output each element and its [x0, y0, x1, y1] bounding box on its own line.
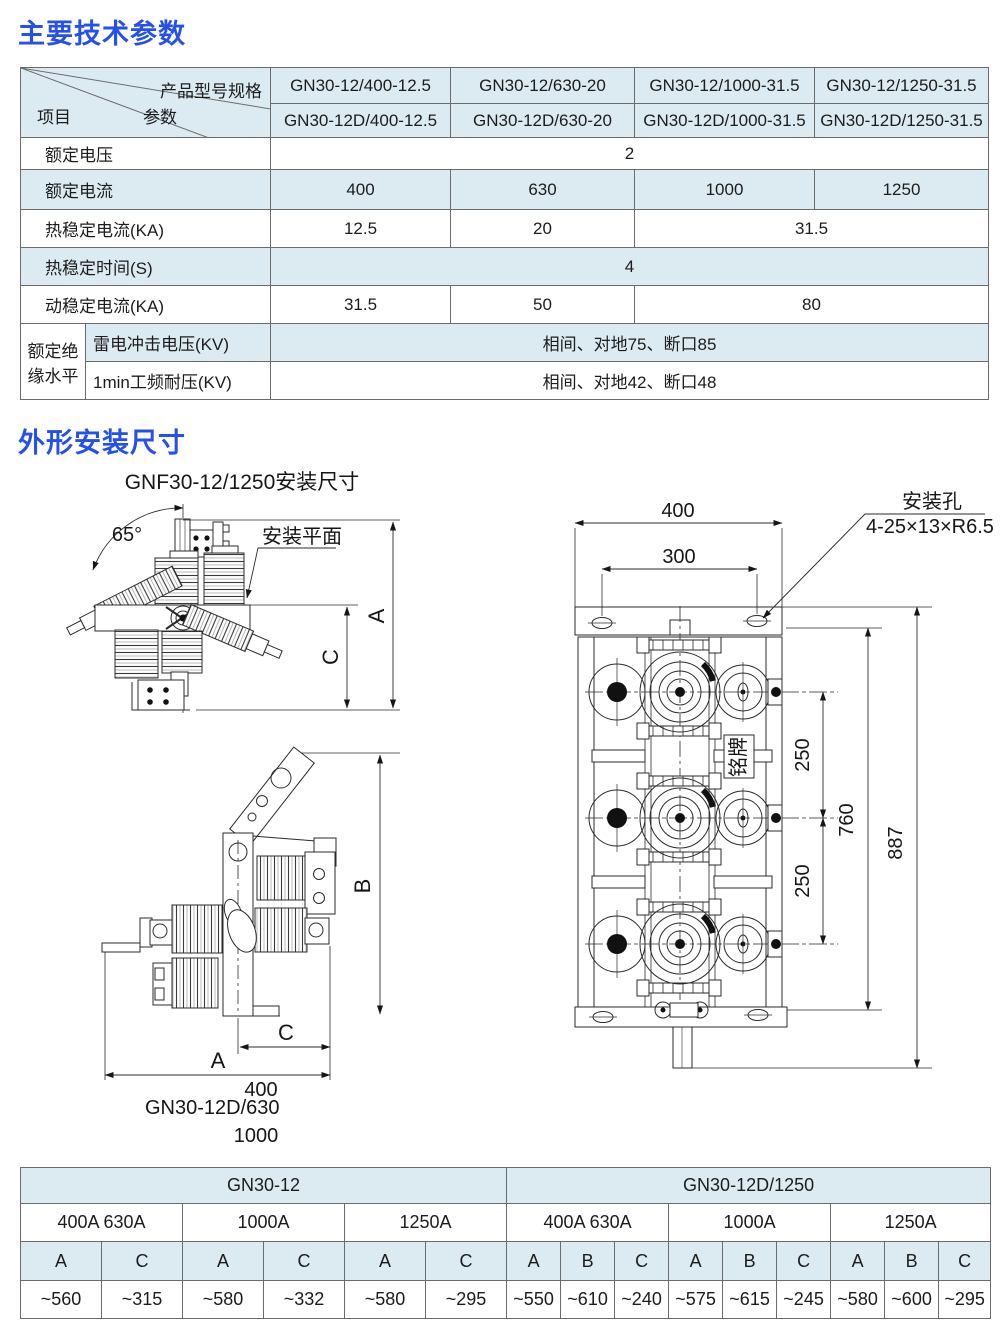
val-cell: ~615 [723, 1281, 777, 1319]
row-label: 额定电流 [21, 170, 271, 210]
plan-hole-span-label: 300 [662, 546, 695, 568]
val-cell: ~580 [831, 1281, 885, 1319]
model-cell: GN30-12D/1250-31.5 [815, 104, 989, 138]
value-cell: 31.5 [635, 210, 989, 248]
phase-pitch2-label: 250 [792, 864, 814, 897]
amp-cell: 1000A [183, 1204, 345, 1242]
dim-c-bottom: C [278, 1020, 294, 1045]
val-cell: ~600 [885, 1281, 939, 1319]
hdr-cell: C [615, 1242, 669, 1281]
row-label: 1min工频耐压(KV) [86, 362, 271, 400]
hdr-cell: A [21, 1242, 102, 1281]
val-cell: ~295 [426, 1281, 507, 1319]
value-cell: 2 [271, 138, 989, 170]
side-model-label: GN30-12D/630 [145, 1097, 280, 1119]
angle-label: 65° [112, 524, 142, 546]
value-cell: 400 [271, 170, 451, 210]
row-label: 热稳定时间(S) [21, 248, 271, 286]
val-cell: ~245 [777, 1281, 831, 1319]
group-line1: 额定绝 [28, 342, 79, 361]
value-cell: 20 [451, 210, 635, 248]
datasheet-page: { "colors": {"accent_blue": "#2550ee", "… [0, 0, 1000, 1340]
hdr-cell: A [669, 1242, 723, 1281]
val-cell: ~240 [615, 1281, 669, 1319]
section1-title: 主要技术参数 [18, 12, 186, 51]
hdr-cell: A [345, 1242, 426, 1281]
hdr-cell: C [426, 1242, 507, 1281]
dim-a-bottom: A [211, 1048, 226, 1073]
value-cell: 630 [451, 170, 635, 210]
val-cell: ~332 [264, 1281, 345, 1319]
dimension-table: GN30-12 GN30-12D/1250 400A 630A 1000A 12… [20, 1167, 991, 1319]
plan-view: 铭牌 400 300 安装孔 4-25×13×R6.5 250 [575, 490, 994, 1068]
mount-plane-label: 安装平面 [262, 525, 342, 548]
corner-label-param: 参数 [143, 103, 177, 128]
hdr-cell: A [831, 1242, 885, 1281]
drawing-subtitle: GNF30-12/1250安装尺寸 [125, 471, 360, 494]
hdr-cell: B [561, 1242, 615, 1281]
value-cell: 80 [635, 286, 989, 324]
group-right: GN30-12D/1250 [507, 1168, 991, 1204]
nameplate-label: 铭牌 [727, 737, 750, 777]
group-line2: 缘水平 [28, 367, 79, 386]
amp-cell: 1250A [345, 1204, 507, 1242]
dim-a-side: A [364, 608, 389, 623]
model-cell: GN30-12D/400-12.5 [271, 104, 451, 138]
val-cell: ~315 [102, 1281, 183, 1319]
val-cell: ~575 [669, 1281, 723, 1319]
model-cell: GN30-12D/630-20 [451, 104, 635, 138]
value-cell: 1000 [635, 170, 815, 210]
val-cell: ~610 [561, 1281, 615, 1319]
val-cell: ~580 [183, 1281, 264, 1319]
value-cell: 相间、对地75、断口85 [271, 324, 989, 362]
amp-cell: 1250A [831, 1204, 991, 1242]
model-cell: GN30-12/630-20 [451, 68, 635, 104]
dim-c-side: C [318, 649, 343, 665]
corner-label-item: 项目 [37, 103, 71, 128]
insulation-group-label: 额定绝 缘水平 [21, 324, 86, 400]
corner-label-model: 产品型号规格 [160, 77, 262, 102]
spec-table: 产品型号规格 参数 项目 GN30-12/400-12.5 GN30-12/63… [20, 67, 989, 400]
hdr-cell: C [264, 1242, 345, 1281]
phase-pitch1-label: 250 [792, 738, 814, 771]
corner-cell: 产品型号规格 参数 项目 [21, 68, 271, 138]
hole-spec-label: 4-25×13×R6.5 [866, 516, 994, 538]
val-cell: ~550 [507, 1281, 561, 1319]
amp-cell: 400A 630A [21, 1204, 183, 1242]
model-cell: GN30-12/1250-31.5 [815, 68, 989, 104]
model-cell: GN30-12D/1000-31.5 [635, 104, 815, 138]
value-cell: 相间、对地42、断口48 [271, 362, 989, 400]
hdr-cell: C [102, 1242, 183, 1281]
value-cell: 12.5 [271, 210, 451, 248]
val-cell: ~295 [939, 1281, 991, 1319]
row-label: 额定电压 [21, 138, 271, 170]
model-cell: GN30-12/400-12.5 [271, 68, 451, 104]
total-height-label: 887 [885, 826, 907, 859]
section2-title: 外形安装尺寸 [18, 421, 186, 460]
value-cell: 50 [451, 286, 635, 324]
plan-width-label: 400 [661, 500, 694, 522]
value-cell: 31.5 [271, 286, 451, 324]
side-view-a: GNF30-12/1250安装尺寸 65° [64, 471, 400, 713]
row-label: 热稳定电流(KA) [21, 210, 271, 248]
hdr-cell: B [723, 1242, 777, 1281]
amp-cell: 1000A [669, 1204, 831, 1242]
hdr-cell: C [939, 1242, 991, 1281]
dim-b-side: B [350, 879, 375, 894]
group-left: GN30-12 [21, 1168, 507, 1204]
hole-label: 安装孔 [902, 490, 962, 513]
hdr-cell: C [777, 1242, 831, 1281]
row-label: 雷电冲击电压(KV) [86, 324, 271, 362]
row-label: 动稳定电流(KA) [21, 286, 271, 324]
value-cell: 1250 [815, 170, 989, 210]
hdr-cell: A [183, 1242, 264, 1281]
value-cell: 4 [271, 248, 989, 286]
val-cell: ~580 [345, 1281, 426, 1319]
hdr-cell: B [885, 1242, 939, 1281]
side-view-b: B [102, 747, 400, 1147]
amp-cell: 400A 630A [507, 1204, 669, 1242]
hdr-cell: A [507, 1242, 561, 1281]
frame-height-label: 760 [836, 803, 858, 836]
side-model2-label: 1000 [234, 1125, 279, 1147]
model-cell: GN30-12/1000-31.5 [635, 68, 815, 104]
val-cell: ~560 [21, 1281, 102, 1319]
